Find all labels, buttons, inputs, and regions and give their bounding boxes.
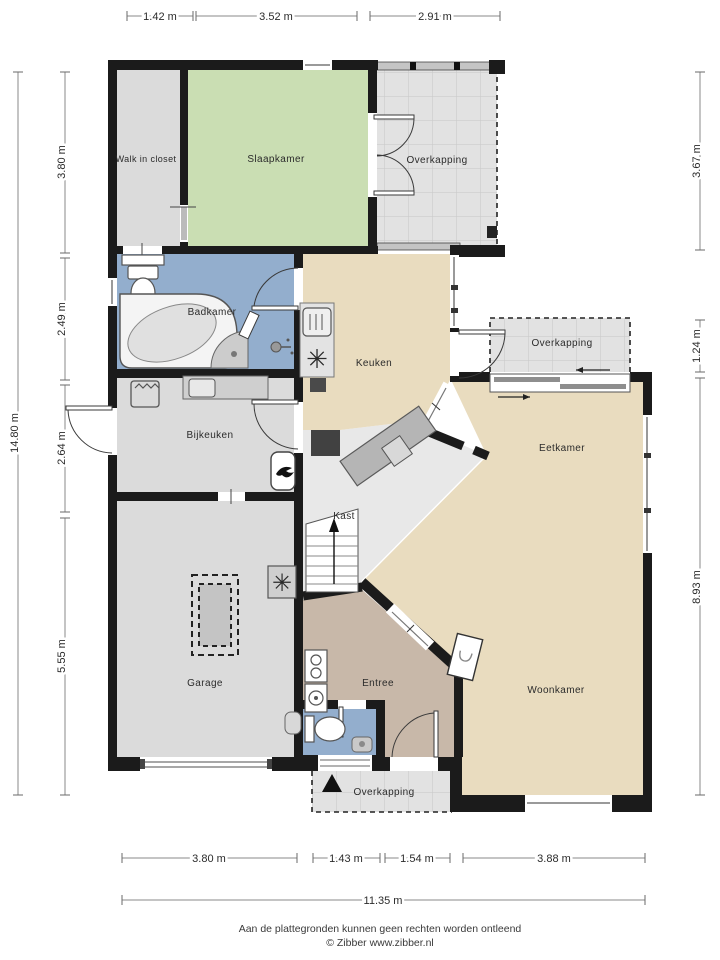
boiler-icon	[271, 452, 295, 490]
floorplan-drawing: ✳ ✳	[0, 0, 720, 960]
utility-sink-icon	[189, 379, 215, 397]
svg-text:✳: ✳	[272, 570, 292, 597]
toilet-window	[318, 755, 372, 771]
floorplan-page: ✳ ✳	[0, 0, 720, 960]
washer-icon	[305, 650, 327, 682]
footer-copyright: © Zibber www.zibber.nl	[326, 937, 434, 949]
cooktop-icon: ✳	[306, 344, 328, 374]
kitchen-sink-icon	[303, 308, 331, 336]
label-overkapping-bottom: Overkapping	[353, 787, 414, 798]
dim-left-3: 2.64 m	[56, 431, 68, 465]
keuken-window	[450, 255, 459, 328]
dim-right-2: 1.24 m	[691, 329, 703, 363]
bijkeuken-exterior-door	[66, 406, 117, 455]
dim-top-3: 2.91 m	[418, 11, 452, 23]
label-garage: Garage	[187, 678, 223, 689]
footer-disclaimer: Aan de plattegronden kunnen geen rechten…	[239, 923, 522, 935]
label-walk-in-closet: Walk in closet	[116, 154, 177, 164]
dim-bottom-total: 11.35 m	[364, 895, 403, 907]
label-eetkamer: Eetkamer	[539, 443, 585, 454]
label-slaapkamer: Slaapkamer	[247, 154, 305, 165]
label-bijkeuken: Bijkeuken	[187, 430, 234, 441]
fan-unit-icon: ✳	[268, 566, 296, 598]
garage-door	[140, 757, 272, 771]
dim-bottom-2: 1.43 m	[329, 853, 363, 865]
label-entree: Entree	[362, 678, 394, 689]
label-woonkamer: Woonkamer	[527, 685, 585, 696]
dim-left-total: 14.80 m	[9, 413, 21, 453]
badkamer-window	[108, 278, 117, 306]
label-overkapping-right: Overkapping	[531, 338, 592, 349]
label-kast: Kast	[333, 511, 355, 522]
dim-right-1: 3.67 m	[691, 144, 703, 178]
eetkamer-window	[643, 415, 652, 553]
utility-counter	[183, 376, 268, 399]
dim-bottom-1: 3.80 m	[192, 853, 226, 865]
garage-sink-icon	[285, 712, 301, 734]
dim-bottom-4: 3.88 m	[537, 853, 571, 865]
woonkamer-window	[525, 795, 612, 812]
dryer-icon	[305, 684, 327, 712]
wc-sink-icon	[352, 737, 372, 752]
label-badkamer: Badkamer	[188, 307, 237, 318]
bathroom-shelf-icon	[122, 255, 164, 265]
dim-left-1: 3.80 m	[56, 145, 68, 179]
label-keuken: Keuken	[356, 358, 392, 369]
dim-top-1: 1.42 m	[143, 11, 177, 23]
slaapkamer-window	[303, 60, 332, 70]
dim-left-4: 5.55 m	[56, 639, 68, 673]
dim-left-2: 2.49 m	[56, 302, 68, 336]
footer: Aan de plattegronden kunnen geen rechten…	[239, 923, 522, 949]
dim-bottom-3: 1.54 m	[400, 853, 434, 865]
dim-top-2: 3.52 m	[259, 11, 293, 23]
label-overkapping-top: Overkapping	[406, 155, 467, 166]
wc-icon	[305, 716, 345, 742]
dim-right-3: 8.93 m	[691, 570, 703, 604]
